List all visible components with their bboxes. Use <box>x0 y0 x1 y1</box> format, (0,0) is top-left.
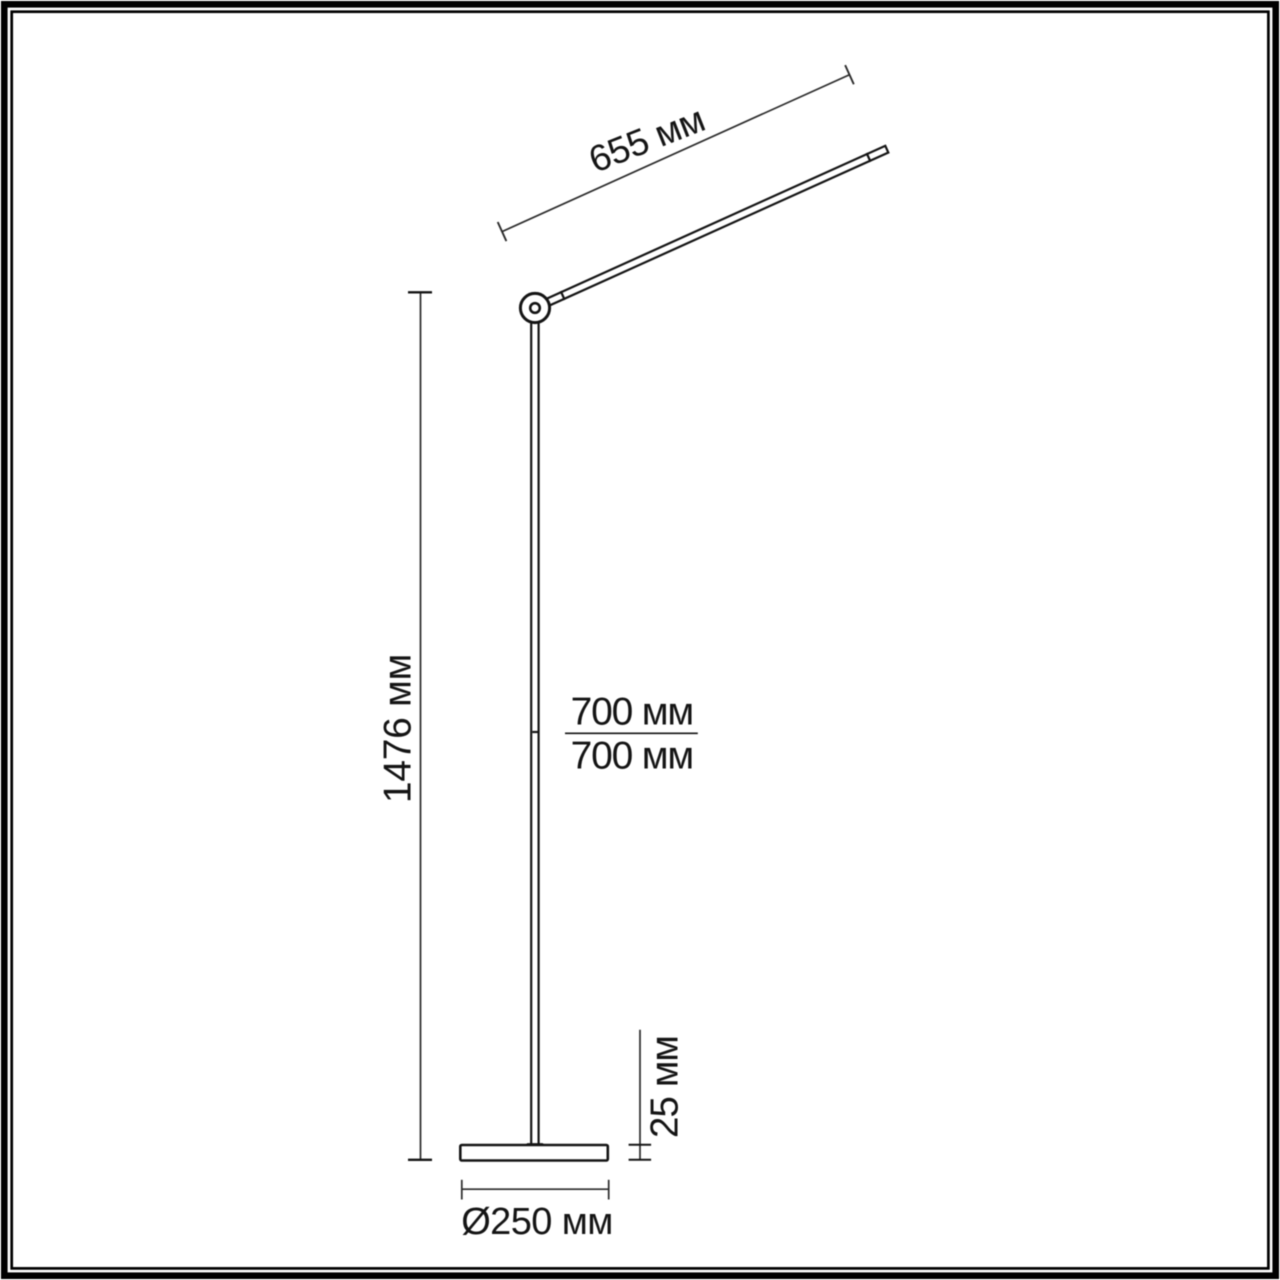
svg-text:25 мм: 25 мм <box>644 1036 687 1138</box>
svg-text:700 мм: 700 мм <box>571 734 693 777</box>
svg-text:700 мм: 700 мм <box>571 691 693 734</box>
svg-text:Ø250 мм: Ø250 мм <box>461 1201 613 1243</box>
svg-text:1476 мм: 1476 мм <box>377 654 420 803</box>
